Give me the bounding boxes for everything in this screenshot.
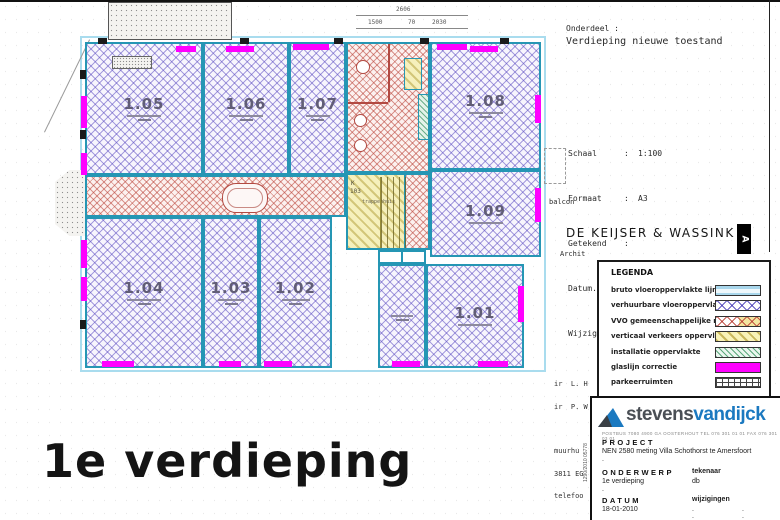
wall-segment [348, 102, 388, 104]
legend-items: bruto vloeroppervlakte lijn verhuurbare … [599, 284, 769, 392]
architect-firm-name: DE KEIJSER & WASSINK [566, 226, 735, 240]
legend-item: glaslijn correctie [599, 361, 769, 376]
service-rooms [378, 250, 426, 264]
room-subtext [225, 303, 238, 305]
room-number: 1.09 [465, 204, 506, 219]
bay-window [55, 170, 87, 236]
balcon-label: balcon [549, 198, 574, 206]
legend-swatch-vvo [715, 316, 761, 327]
legend-item: VVO gemeenschappelijke ruimte [599, 315, 769, 330]
wijzigingen-label: wijzigingen [692, 496, 730, 503]
dimension-annotation: 2606 1500 70 2030 [350, 6, 470, 36]
room-subtext [469, 112, 503, 114]
room-number: 1.01 [454, 306, 495, 321]
window-mark [500, 38, 509, 44]
wall-segment [388, 44, 390, 102]
glaslijn-strip [535, 95, 541, 123]
legend-box: LEGENDA bruto vloeroppervlakte lijn verh… [597, 260, 771, 398]
stair-treads [380, 177, 407, 248]
sink-fixture [354, 114, 367, 127]
lift-shaft [404, 58, 422, 90]
installation-block [112, 56, 152, 69]
room-1-01: 1.01 [426, 264, 524, 368]
legend-title: LEGENDA [611, 268, 653, 277]
room-subtext [127, 299, 161, 301]
window-mark [80, 320, 86, 329]
dimension-segment: 70 [408, 19, 415, 26]
onderdeel-value: Verdieping nieuwe toestand [566, 36, 723, 47]
room-1-01-annex [378, 264, 426, 368]
legend-swatch-bruto [715, 285, 761, 296]
glaslijn-strip [478, 361, 508, 367]
balcony-outline [544, 148, 566, 184]
vvo-landing [404, 173, 430, 250]
legend-item: verhuurbare vloeroppervlakte [599, 299, 769, 314]
glaslijn-strip [81, 240, 87, 268]
architect-fragment: Archit [560, 250, 585, 258]
datum-label: DATUM [602, 496, 641, 505]
room-number: 1.02 [275, 281, 316, 296]
brand-wordmark: stevensvandijck [626, 404, 765, 426]
room-number: 1.03 [210, 281, 251, 296]
info-label: Formaat [568, 191, 624, 206]
room-number: 1.08 [465, 94, 506, 109]
onderwerp-value: 1e verdieping [602, 478, 644, 485]
room-subtext [240, 119, 253, 121]
glaslijn-strip [102, 361, 134, 367]
legend-label: bruto vloeroppervlakte lijn [611, 286, 717, 294]
window-mark [98, 38, 107, 44]
dot: . [602, 456, 604, 463]
legend-label: glaslijn correctie [611, 363, 677, 371]
room-subtext [469, 222, 503, 224]
info-value: 1:100 [638, 149, 662, 158]
room-1-03: 1.03 [203, 217, 259, 368]
glaslijn-strip [226, 46, 254, 52]
legend-item: bruto vloeroppervlakte lijn [599, 284, 769, 299]
room-subtext [479, 116, 492, 118]
room-subtext [289, 303, 302, 305]
window-mark [240, 38, 249, 44]
legend-swatch-installatie [715, 347, 761, 358]
room-subtext [282, 299, 310, 301]
window-mark [80, 70, 86, 79]
info-value: A3 [638, 194, 648, 203]
legend-item: verticaal verkeers oppervlakte [599, 330, 769, 345]
info-label: Schaal [568, 146, 624, 161]
info-colon: : [624, 146, 638, 161]
fragment-line: ir P. W [554, 404, 588, 412]
room-1-02: 1.02 [259, 217, 332, 368]
vvo-corridor [85, 175, 346, 217]
info-row: Schaal:1:100 [568, 146, 677, 161]
room-subtext [396, 319, 409, 321]
info-colon: : [624, 191, 638, 206]
revision-marker: A [737, 224, 751, 254]
room-subtext [138, 303, 151, 305]
tekenaar-value: db [692, 478, 700, 485]
floor-title: 1e verdieping [42, 434, 412, 488]
window-mark [420, 38, 429, 44]
room-1-06: 1.06 [203, 42, 289, 175]
glaslijn-strip [81, 96, 87, 128]
info-row: Formaat:A3 [568, 191, 677, 206]
room-1-09: 1.09 [430, 170, 541, 257]
room-subtext [311, 119, 324, 121]
sink-fixture [354, 139, 367, 152]
glaslijn-strip [518, 286, 524, 322]
sheet-frame-right [769, 0, 770, 252]
fragment-line: ir L. H [554, 381, 588, 389]
tekenaar-label: tekenaar [692, 468, 721, 475]
stair-label-k: K [351, 180, 355, 187]
onderwerp-label: ONDERWERP [602, 468, 674, 477]
glaslijn-strip [81, 277, 87, 301]
brand-part1: stevens [626, 404, 693, 425]
room-number: 1.04 [123, 281, 164, 296]
legend-swatch-parkeer [715, 377, 761, 388]
legend-item: parkeerruimten [599, 376, 769, 391]
staircase: K 103 trappenhuis [346, 173, 406, 250]
glaslijn-strip [470, 46, 498, 52]
window-mark [334, 38, 343, 44]
legend-label: parkeerruimten [611, 378, 673, 386]
vvo-sanitary-area [346, 42, 430, 173]
window-mark [80, 130, 86, 139]
dimension-total: 2606 [396, 6, 410, 13]
dimension-segment: 1500 [368, 19, 382, 26]
glaslijn-strip [293, 44, 329, 50]
toilet-fixture [356, 60, 370, 74]
project-value: NEN 2580 meting Villa Schothorst te Amer… [602, 448, 751, 455]
bath-fixture-inner [227, 188, 263, 208]
glaslijn-strip [264, 361, 292, 367]
glaslijn-strip [437, 44, 467, 50]
stair-label-number: 103 [350, 188, 361, 195]
legend-label: verhuurbare vloeroppervlakte [611, 301, 730, 309]
glaslijn-strip [219, 361, 241, 367]
datum-value: 18-01-2010 [602, 506, 638, 513]
room-subtext [127, 115, 161, 117]
room-subtext [218, 299, 244, 301]
room-1-04: 1.04 [85, 217, 203, 368]
glaslijn-strip [81, 153, 87, 175]
legend-swatch-verhuurbaar [715, 300, 761, 311]
drawing-sheet: 2606 1500 70 2030 1.05 1.06 1.07 1.08 1.… [0, 0, 780, 520]
drawing-code: 1290/2010 05778 [583, 443, 589, 482]
fragment-line: telefoo [554, 493, 588, 501]
room-1-07: 1.07 [289, 42, 346, 175]
legend-item: installatie oppervlakte [599, 346, 769, 361]
dot: . [602, 486, 604, 493]
legend-label: installatie oppervlakte [611, 348, 701, 356]
dormer-roof [108, 2, 232, 40]
stevensvandijck-logo-icon [598, 405, 624, 427]
room-subtext [458, 324, 492, 326]
room-subtext [306, 115, 330, 117]
room-1-08: 1.08 [430, 42, 541, 170]
dimension-line [356, 28, 468, 29]
glaslijn-strip [176, 46, 196, 52]
room-subtext [229, 115, 263, 117]
legend-swatch-verticaal [715, 331, 761, 342]
wall-segment [401, 252, 403, 262]
room-number: 1.06 [225, 97, 266, 112]
room-subtext [138, 119, 151, 121]
dimension-segment: 2030 [432, 19, 446, 26]
legend-label: verticaal verkeers oppervlakte [611, 332, 732, 340]
dimension-line [356, 15, 468, 16]
glaslijn-strip [535, 188, 541, 222]
room-subtext [391, 315, 413, 317]
glaslijn-strip [392, 361, 420, 367]
bath-fixture [222, 183, 268, 213]
brand-part2: vandijck [693, 404, 765, 425]
architect-address-fragments: ir L. H ir P. W muurhu 3811 EG telefoo [554, 366, 588, 516]
installation-shaft [418, 94, 429, 140]
legend-swatch-glaslijn [715, 362, 761, 373]
fragment-gap [554, 426, 588, 433]
onderdeel-label: Onderdeel : [566, 24, 619, 33]
project-label: PROJECT [602, 438, 655, 447]
room-number: 1.05 [123, 97, 164, 112]
room-number: 1.07 [297, 97, 338, 112]
dot: . [742, 513, 744, 520]
dot: . [692, 513, 694, 520]
revision-letter: A [739, 236, 749, 243]
title-block: 1290/2010 05778 stevensvandijck POSTBUS … [590, 396, 780, 520]
